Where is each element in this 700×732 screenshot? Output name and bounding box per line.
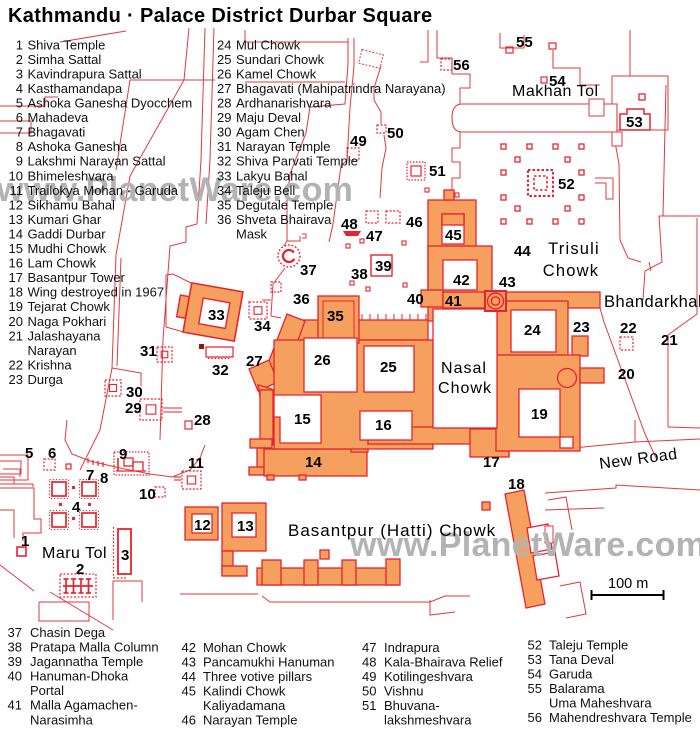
svg-text:Lakshmi Narayan Sattal: Lakshmi Narayan Sattal (28, 154, 166, 169)
svg-text:7: 7 (86, 467, 94, 484)
svg-text:47: 47 (366, 228, 383, 245)
svg-text:33: 33 (208, 307, 225, 324)
svg-text:Agam Chen: Agam Chen (236, 125, 305, 140)
svg-text:34: 34 (217, 183, 231, 198)
svg-text:4: 4 (16, 81, 23, 96)
svg-text:26: 26 (217, 66, 231, 81)
svg-text:Ashoka Ganesha: Ashoka Ganesha (28, 139, 129, 154)
svg-text:49: 49 (362, 669, 376, 684)
svg-text:14: 14 (305, 454, 322, 471)
svg-text:17: 17 (483, 454, 500, 471)
svg-text:53: 53 (626, 114, 643, 131)
svg-text:45: 45 (445, 227, 462, 244)
svg-text:Lam Chowk: Lam Chowk (28, 256, 97, 271)
svg-text:5: 5 (25, 445, 33, 462)
svg-text:Kavindrapura Sattal: Kavindrapura Sattal (28, 66, 142, 81)
svg-text:15: 15 (9, 241, 23, 256)
svg-text:56: 56 (453, 57, 470, 74)
svg-text:53: 53 (528, 652, 542, 667)
svg-text:39: 39 (375, 258, 392, 275)
svg-text:Pratapa Malla Column: Pratapa Malla Column (30, 640, 159, 655)
svg-text:37: 37 (8, 625, 22, 640)
svg-text:46: 46 (406, 214, 423, 231)
svg-text:28: 28 (217, 96, 231, 111)
svg-text:Portal: Portal (30, 683, 64, 698)
svg-text:50: 50 (387, 125, 404, 142)
svg-text:Mudhi Chowk: Mudhi Chowk (28, 241, 107, 256)
svg-text:Simha Sattal: Simha Sattal (28, 52, 102, 67)
svg-text:Basantpur (Hatti) Chowk: Basantpur (Hatti) Chowk (288, 521, 496, 540)
svg-text:Kala-Bhairava Relief: Kala-Bhairava Relief (384, 655, 503, 670)
svg-text:31: 31 (140, 343, 157, 360)
svg-text:Tejarat Chowk: Tejarat Chowk (28, 299, 111, 314)
svg-text:29: 29 (217, 110, 231, 125)
svg-text:8: 8 (100, 470, 108, 487)
svg-text:56: 56 (528, 710, 542, 725)
svg-text:Narayan Temple: Narayan Temple (236, 139, 330, 154)
svg-text:lakshmeshvara: lakshmeshvara (384, 713, 472, 728)
svg-text:Nasal: Nasal (441, 360, 487, 377)
svg-text:Taleju Bell: Taleju Bell (236, 183, 295, 198)
svg-text:Three votive pillars: Three votive pillars (203, 669, 313, 684)
svg-text:9: 9 (119, 446, 127, 463)
svg-text:Indrapura: Indrapura (384, 640, 440, 655)
svg-text:43: 43 (182, 655, 196, 670)
svg-text:Bhagavati (Mahipatrindra Naray: Bhagavati (Mahipatrindra Narayana) (236, 81, 446, 96)
svg-text:Ardhanarishvara: Ardhanarishvara (236, 96, 332, 111)
svg-text:Maru Tol: Maru Tol (42, 545, 107, 562)
svg-text:40: 40 (407, 291, 424, 308)
svg-text:37: 37 (300, 262, 317, 279)
svg-text:Kasthamandapa: Kasthamandapa (28, 81, 123, 96)
svg-text:Malla Agamachen-: Malla Agamachen- (30, 698, 138, 713)
svg-text:Garuda: Garuda (549, 667, 593, 682)
svg-text:27: 27 (217, 81, 231, 96)
svg-text:6: 6 (48, 445, 56, 462)
svg-text:25: 25 (217, 52, 231, 67)
svg-text:Mahendreshvara Temple: Mahendreshvara Temple (549, 710, 692, 725)
svg-text:Chowk: Chowk (543, 262, 599, 280)
svg-text:18: 18 (9, 285, 23, 300)
svg-text:39: 39 (8, 654, 22, 669)
svg-text:Mul Chowk: Mul Chowk (236, 37, 301, 52)
svg-text:33: 33 (217, 168, 231, 183)
svg-text:12: 12 (9, 197, 23, 212)
svg-text:Gaddi Durbar: Gaddi Durbar (28, 227, 107, 242)
svg-text:Mask: Mask (236, 227, 268, 242)
svg-text:35: 35 (327, 308, 344, 325)
svg-text:9: 9 (16, 154, 23, 169)
svg-text:Kalindi Chowk: Kalindi Chowk (203, 684, 286, 699)
svg-text:24: 24 (217, 37, 231, 52)
svg-text:Jagannatha Temple: Jagannatha Temple (30, 654, 143, 669)
svg-text:13: 13 (237, 518, 254, 535)
svg-text:18: 18 (508, 476, 525, 493)
svg-text:30: 30 (217, 125, 231, 140)
svg-text:42: 42 (453, 272, 470, 289)
svg-text:Shiva Temple: Shiva Temple (28, 37, 106, 52)
svg-text:Chowk: Chowk (438, 380, 492, 397)
svg-text:32: 32 (212, 362, 229, 379)
svg-text:Sikhamu Bahal: Sikhamu Bahal (28, 197, 116, 212)
svg-text:Wing destroyed in 1967: Wing destroyed in 1967 (28, 285, 165, 300)
svg-text:36: 36 (293, 291, 310, 308)
svg-text:44: 44 (514, 243, 531, 260)
svg-text:Taleju Temple: Taleju Temple (549, 638, 628, 653)
svg-text:36: 36 (217, 212, 231, 227)
svg-text:1: 1 (21, 533, 29, 550)
svg-text:Tana Deval: Tana Deval (549, 652, 614, 667)
svg-text:20: 20 (618, 366, 635, 383)
svg-text:Pancamukhi Hanuman: Pancamukhi Hanuman (203, 655, 335, 670)
svg-text:Shiva Parvati Temple: Shiva Parvati Temple (236, 154, 358, 169)
svg-text:Bhagavati: Bhagavati (28, 125, 86, 140)
svg-text:19: 19 (531, 406, 548, 423)
svg-text:Basantpur Tower: Basantpur Tower (28, 270, 126, 285)
svg-text:11: 11 (188, 455, 204, 472)
svg-text:10: 10 (9, 168, 23, 183)
svg-text:25: 25 (380, 359, 397, 376)
svg-text:41: 41 (8, 698, 22, 713)
svg-text:Ashoka Ganesha Dyocchem: Ashoka Ganesha Dyocchem (28, 96, 193, 111)
svg-text:11: 11 (10, 183, 24, 198)
svg-text:51: 51 (429, 163, 446, 180)
svg-text:47: 47 (362, 640, 376, 655)
svg-text:13: 13 (9, 212, 23, 227)
svg-text:Kotilingeshvara: Kotilingeshvara (384, 669, 474, 684)
svg-text:4: 4 (72, 499, 81, 516)
svg-text:100 m: 100 m (608, 576, 648, 592)
svg-text:40: 40 (8, 669, 22, 684)
svg-text:12: 12 (194, 517, 211, 534)
svg-text:55: 55 (528, 681, 542, 696)
svg-text:45: 45 (182, 684, 196, 699)
svg-text:51: 51 (362, 698, 376, 713)
svg-text:Maju Deval: Maju Deval (236, 110, 301, 125)
svg-text:38: 38 (351, 266, 368, 283)
svg-text:24: 24 (524, 322, 541, 339)
svg-text:Kamel Chowk: Kamel Chowk (236, 66, 317, 81)
svg-text:8: 8 (16, 139, 23, 154)
svg-text:54: 54 (528, 667, 542, 682)
svg-text:35: 35 (217, 197, 231, 212)
svg-text:Narayan Temple: Narayan Temple (203, 713, 297, 728)
svg-text:23: 23 (9, 372, 23, 387)
svg-text:17: 17 (9, 270, 23, 285)
svg-text:Narasimha: Narasimha (30, 712, 94, 727)
svg-text:Shveta Bhairava: Shveta Bhairava (236, 212, 332, 227)
svg-text:42: 42 (182, 640, 196, 655)
svg-text:Trisuli: Trisuli (548, 240, 600, 258)
svg-text:Chasin Dega: Chasin Dega (30, 625, 106, 640)
svg-text:44: 44 (182, 669, 196, 684)
svg-text:22: 22 (620, 320, 637, 337)
svg-text:2: 2 (16, 52, 23, 67)
svg-text:43: 43 (499, 274, 516, 291)
svg-text:55: 55 (516, 34, 533, 51)
svg-text:Kaliyadamana: Kaliyadamana (203, 698, 286, 713)
svg-text:7: 7 (16, 125, 23, 140)
svg-text:3: 3 (121, 547, 129, 564)
svg-text:28: 28 (194, 412, 211, 429)
svg-text:34: 34 (254, 318, 271, 335)
svg-text:48: 48 (341, 216, 358, 233)
svg-text:52: 52 (558, 176, 575, 193)
svg-text:32: 32 (217, 154, 231, 169)
svg-text:Degutale Temple: Degutale Temple (236, 197, 333, 212)
svg-text:52: 52 (528, 638, 542, 653)
svg-text:29: 29 (125, 400, 142, 417)
svg-text:Balarama: Balarama (549, 681, 605, 696)
svg-text:1: 1 (16, 37, 23, 52)
svg-text:15: 15 (294, 411, 311, 428)
svg-text:Naga Pokhari: Naga Pokhari (28, 314, 107, 329)
svg-text:30: 30 (126, 384, 143, 401)
svg-text:5: 5 (16, 96, 23, 111)
svg-text:23: 23 (573, 319, 590, 336)
svg-text:21: 21 (661, 332, 678, 349)
svg-text:Vishnu: Vishnu (384, 684, 424, 699)
svg-text:46: 46 (182, 713, 196, 728)
svg-text:Bhimeleshvara: Bhimeleshvara (28, 168, 115, 183)
svg-text:Hanuman-Dhoka: Hanuman-Dhoka (30, 669, 129, 684)
svg-text:Sundari Chowk: Sundari Chowk (236, 52, 325, 67)
svg-text:16: 16 (375, 417, 392, 434)
svg-text:50: 50 (362, 684, 376, 699)
svg-text:49: 49 (350, 133, 367, 150)
svg-text:Makhan Tol: Makhan Tol (512, 83, 599, 100)
svg-text:20: 20 (9, 314, 23, 329)
svg-text:48: 48 (362, 655, 376, 670)
svg-text:Durga: Durga (28, 372, 64, 387)
svg-text:38: 38 (8, 640, 22, 655)
svg-text:19: 19 (9, 299, 23, 314)
svg-text:Krishna: Krishna (28, 357, 73, 372)
svg-text:27: 27 (246, 353, 263, 370)
svg-text:2: 2 (76, 561, 84, 578)
svg-text:Jalashayana: Jalashayana (28, 328, 102, 343)
svg-text:Kumari Ghar: Kumari Ghar (28, 212, 102, 227)
svg-text:26: 26 (314, 352, 331, 369)
svg-text:16: 16 (9, 256, 23, 271)
svg-text:Bhuvana-: Bhuvana- (384, 698, 440, 713)
svg-text:22: 22 (9, 357, 23, 372)
svg-text:41: 41 (445, 293, 462, 310)
svg-text:Trailokya Mohan · Garuda: Trailokya Mohan · Garuda (28, 183, 179, 198)
svg-text:Mohan Chowk: Mohan Chowk (203, 640, 287, 655)
svg-text:Lakyu Bahal: Lakyu Bahal (236, 168, 308, 183)
svg-text:3: 3 (16, 66, 23, 81)
svg-text:10: 10 (139, 486, 156, 503)
svg-text:Uma Maheshvara: Uma Maheshvara (549, 696, 652, 711)
svg-text:Mahadeva: Mahadeva (28, 110, 89, 125)
svg-text:14: 14 (9, 227, 23, 242)
svg-text:21: 21 (9, 328, 23, 343)
svg-text:Kathmandu · Palace District Du: Kathmandu · Palace District Durbar Squar… (8, 5, 432, 27)
svg-text:Bhandarkhal: Bhandarkhal (604, 293, 700, 311)
svg-text:6: 6 (16, 110, 23, 125)
svg-text:31: 31 (217, 139, 231, 154)
svg-text:Narayan: Narayan (28, 343, 77, 358)
